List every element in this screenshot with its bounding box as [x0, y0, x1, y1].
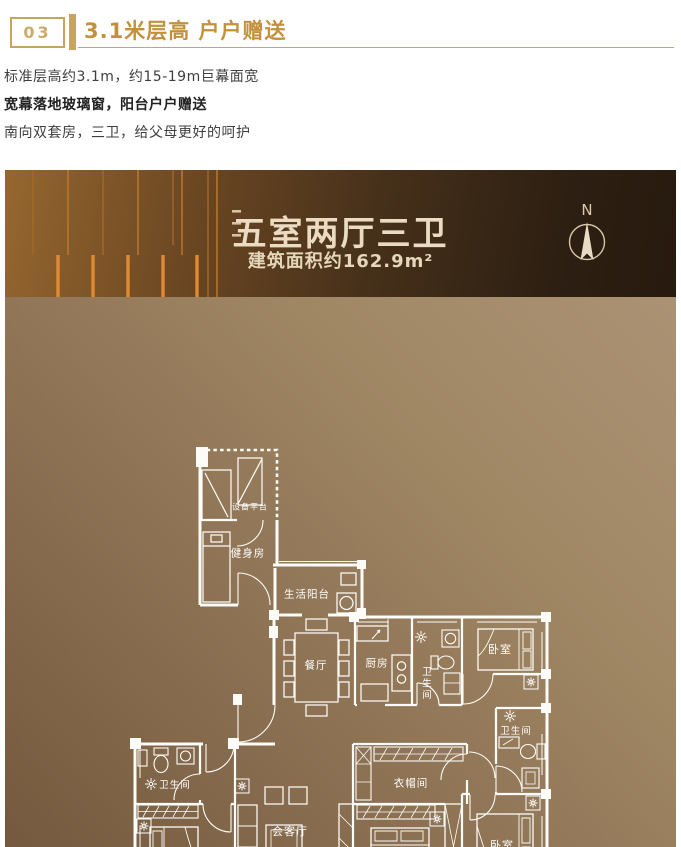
room-label-living: 会客厅 [272, 823, 308, 839]
room-label-bath-center: 卫生间 [418, 667, 432, 702]
room-label-bath-west: 卫生间 [159, 777, 191, 791]
badge-divider-bar [69, 14, 76, 50]
section-title: 3.1米层高 户户赠送 [84, 15, 287, 45]
plan-wardrobes [138, 805, 435, 819]
floorplan-area: 设备平台 健身房 生活阳台 餐厅 厨房 卫生间 卧室 卫生间 卫生间 衣帽间 卧… [5, 297, 676, 847]
room-label-bedroom-se: 卧室 [490, 837, 514, 847]
plan-furniture-gym [202, 458, 262, 602]
room-label-cloakroom: 衣帽间 [394, 776, 429, 791]
room-label-gym: 健身房 [231, 546, 266, 561]
description-line-1: 标准层高约3.1m，约15-19m巨幕面宽 [4, 66, 259, 86]
room-label-service-balcony: 生活阳台 [284, 587, 330, 602]
section-number-badge: 03 [10, 17, 65, 48]
room-label-bedroom-ne: 卧室 [488, 641, 512, 657]
title-underline [78, 47, 674, 48]
panel-header: 五室两厅三卫 建筑面积约162.9m² N [5, 170, 676, 297]
plan-interior-walls [135, 520, 547, 847]
plan-furniture-bath-east [499, 710, 545, 788]
floorplan-panel: 五室两厅三卫 建筑面积约162.9m² N [5, 170, 676, 847]
plan-furniture-cloakroom [356, 747, 463, 800]
room-label-kitchen: 厨房 [366, 656, 389, 671]
compass-needle-icon [581, 222, 594, 260]
description-line-2: 宽幕落地玻璃窗，阳台户户赠送 [4, 94, 207, 114]
plan-doors [174, 520, 522, 847]
room-label-bath-east: 卫生间 [500, 723, 532, 737]
plan-furniture-service-balcony [337, 573, 356, 613]
page: 03 3.1米层高 户户赠送 标准层高约3.1m，约15-19m巨幕面宽 宽幕落… [0, 0, 681, 847]
description-line-3: 南向双套房，三卫，给父母更好的呵护 [4, 122, 251, 142]
compass-icon: N [557, 200, 617, 266]
compass-north-label: N [581, 201, 592, 219]
floorplan-drawing-box: 设备平台 健身房 生活阳台 餐厅 厨房 卫生间 卧室 卫生间 卫生间 衣帽间 卧… [125, 442, 570, 847]
plan-furniture-beds [150, 629, 533, 847]
room-label-equipment-platform: 设备平台 [232, 502, 268, 513]
room-label-dining: 餐厅 [305, 658, 328, 673]
